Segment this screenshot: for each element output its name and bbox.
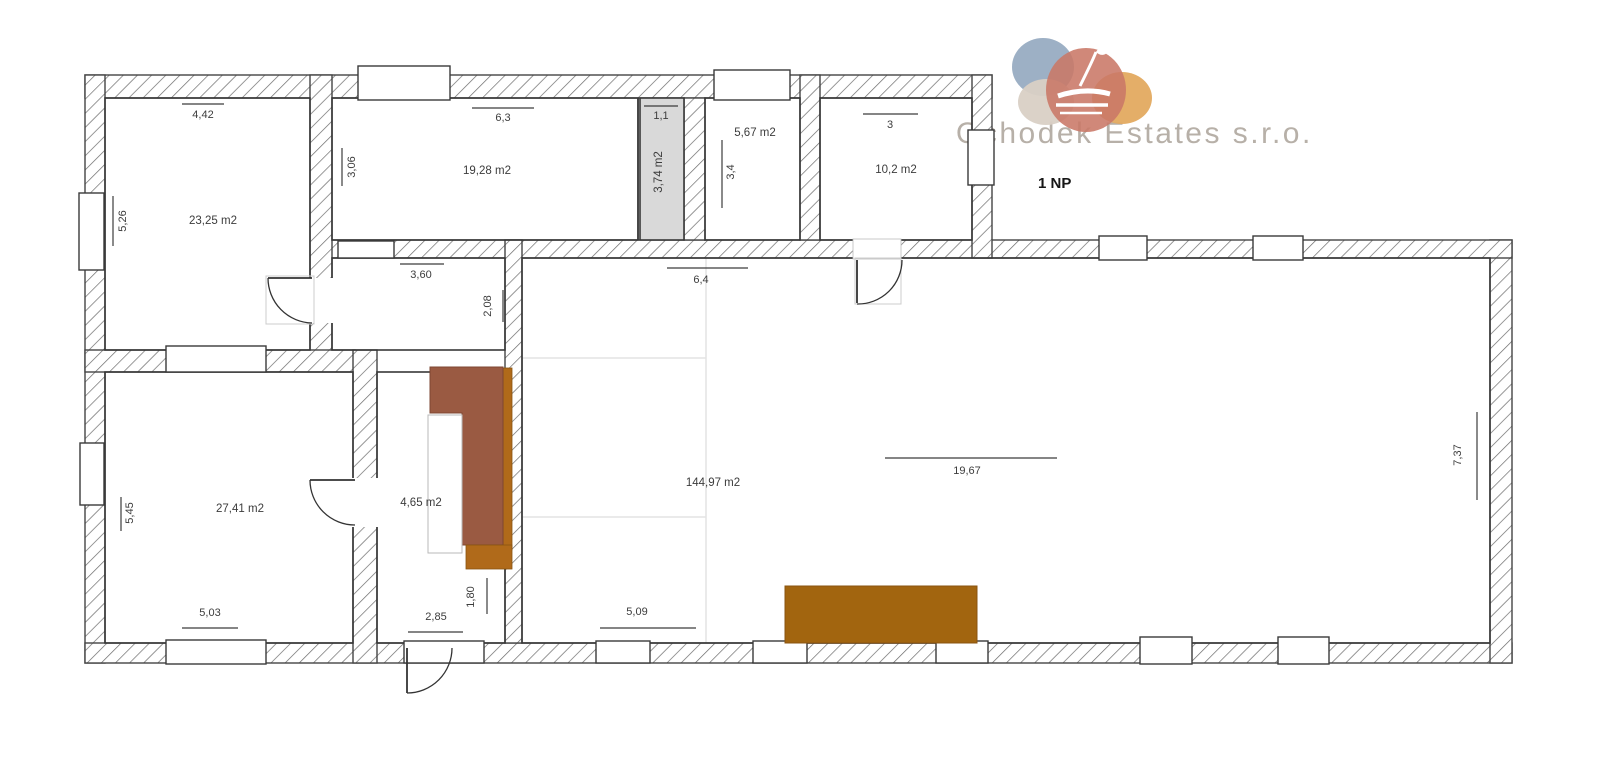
door-bottom-left-room [310,478,379,527]
faint-partition-lines [522,258,706,643]
dim-label: 2,85 [425,611,446,623]
main-room-counter [785,586,977,643]
area-label: 4,65 m2 [400,497,442,509]
wall-right [1490,240,1512,663]
walls [85,75,1512,663]
room-main-outline [522,258,1490,643]
company-logo: Ochodek Estates s.r.o. [956,38,1313,150]
window-mid-1 [1099,236,1147,260]
window-top-1 [358,66,450,100]
wall-vert-utility-right [684,98,705,240]
dim-label: 3,60 [410,269,431,281]
dim-label: 5,45 [124,502,136,523]
stair-void [428,415,462,553]
dim-label: 2,08 [482,295,494,316]
floor-level-label: 1 NP [1038,175,1071,192]
window-interior-left [166,346,266,372]
dim-label: 7,37 [1452,444,1464,465]
area-label: 3,74 m2 [653,151,665,193]
window-bottom-6 [1140,637,1192,664]
area-label: 144,97 m2 [686,477,740,489]
area-label: 5,67 m2 [734,127,776,139]
dim-label: 1,80 [465,586,477,607]
dim-label: 6,3 [495,112,510,124]
window-bottom-7 [1278,637,1329,664]
stair-landing [466,545,512,569]
dim-label: 3,06 [346,156,358,177]
room-small-outline [705,98,800,240]
floor-plan-page: Ochodek Estates s.r.o. 1 NP [0,0,1600,778]
window-interior-mid [338,241,394,258]
area-label: 27,41 m2 [216,503,264,515]
area-label: 23,25 m2 [189,215,237,227]
window-left-1 [79,193,104,270]
window-top-2 [714,70,790,100]
area-label: 19,28 m2 [463,165,511,177]
area-label: 10,2 m2 [875,164,917,176]
dim-label: 5,03 [199,607,220,619]
dim-label: 5,26 [117,210,129,231]
company-name-text: Ochodek Estates s.r.o. [956,117,1313,150]
window-left-2 [80,443,104,505]
window-bottom-5 [936,641,988,663]
window-bottom-2 [404,641,484,663]
window-bottom-3 [596,641,650,663]
window-bottom-1 [166,640,266,664]
dim-label: 3 [887,119,893,131]
wall-top [85,75,992,98]
opening-topright [968,130,994,185]
door-main-room-top [853,239,902,304]
window-mid-2 [1253,236,1303,260]
door-top-left-room [266,276,334,324]
dim-label: 5,09 [626,606,647,618]
dim-label: 3,4 [725,164,737,179]
window-bottom-4 [753,641,807,663]
dim-label: 6,4 [693,274,708,286]
wall-vert-567-102 [800,75,820,240]
dim-label: 4,42 [192,109,213,121]
floor-plan-canvas: Ochodek Estates s.r.o. 1 NP [0,0,1600,778]
dim-label: 19,67 [953,465,981,477]
dim-label: 1,1 [653,110,668,122]
